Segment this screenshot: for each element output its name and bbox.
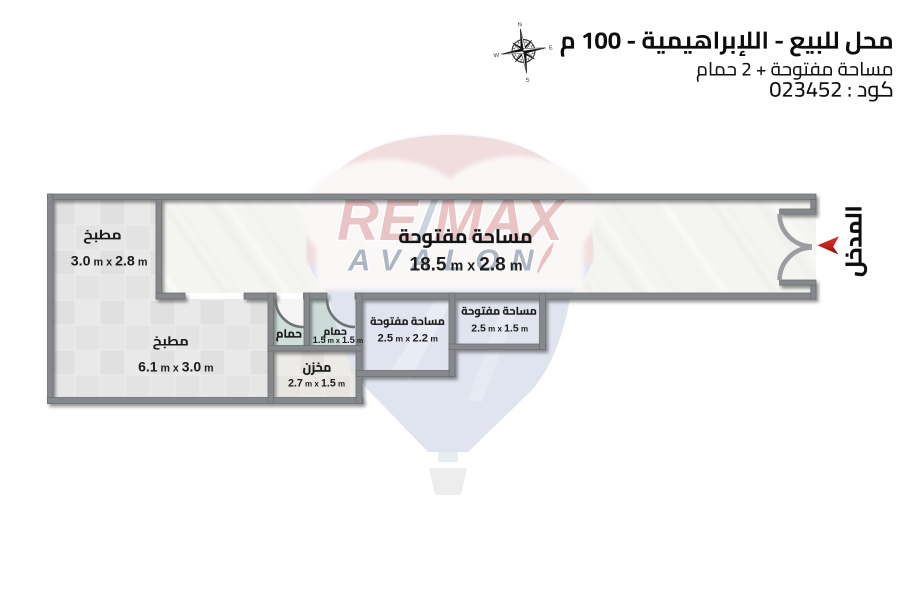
svg-text:18.5 m x 2.8 m: 18.5 m x 2.8 m (410, 255, 523, 276)
svg-text:3.0 m x 2.8 m: 3.0 m x 2.8 m (71, 253, 148, 269)
svg-text:2.5 m x 1.5 m: 2.5 m x 1.5 m (471, 323, 528, 335)
svg-text:2.5 m x 2.2 m: 2.5 m x 2.2 m (378, 333, 439, 345)
svg-text:N: N (517, 22, 522, 29)
svg-text:2.7 m x 1.5 m: 2.7 m x 1.5 m (288, 377, 345, 389)
